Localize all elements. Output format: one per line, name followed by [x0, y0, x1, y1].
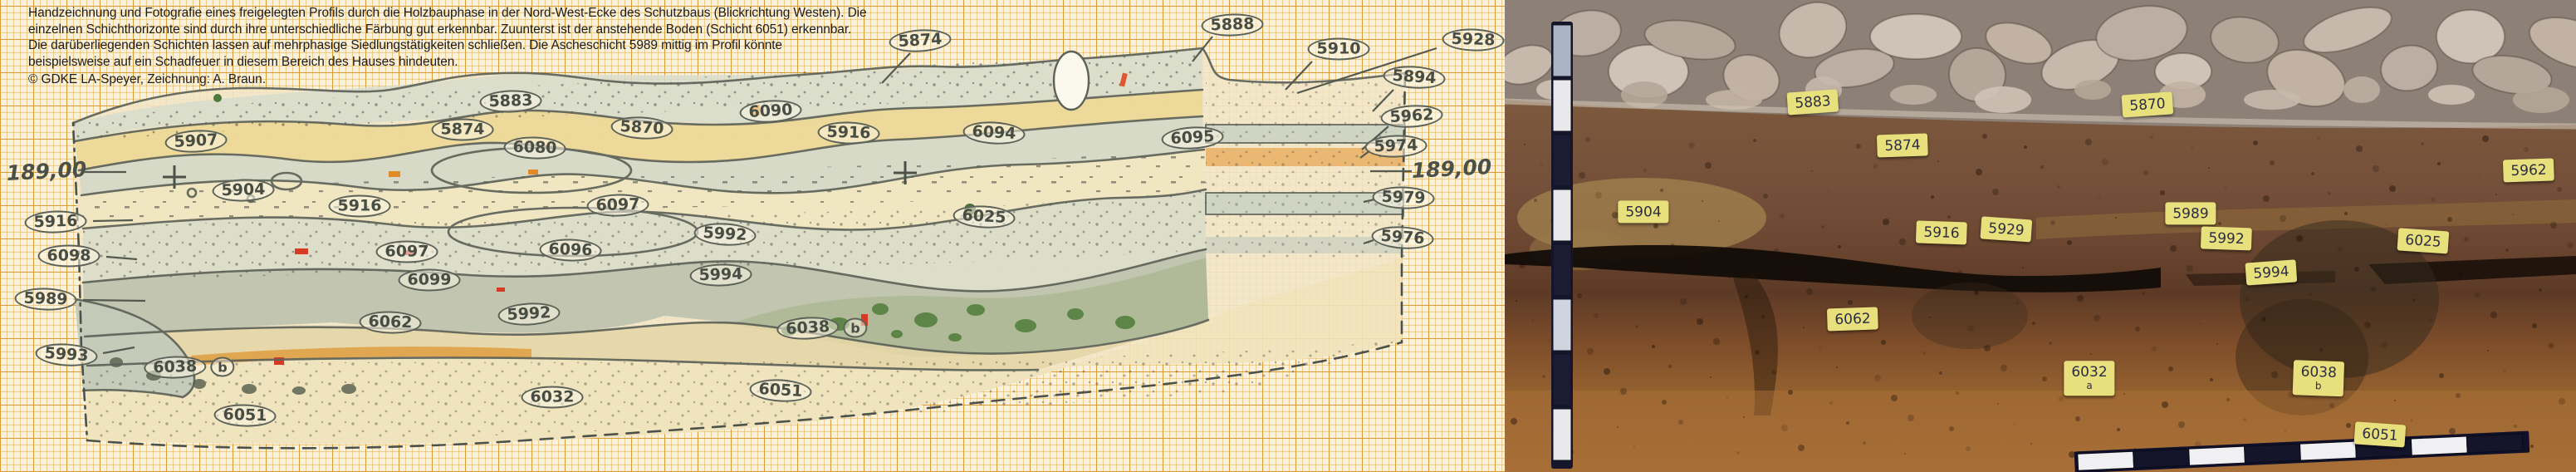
caption-credit: © GDKE LA-Speyer, Zeichnung: A. Braun.: [28, 71, 266, 88]
caption-text: Handzeichnung und Fotografie eines freig…: [28, 6, 867, 69]
figure-canvas: 5907588358746080587060905904591659166094…: [0, 0, 2576, 472]
profile-photo-art: [1505, 0, 2576, 472]
figure-caption: Handzeichnung und Fotografie eines freig…: [28, 5, 867, 87]
profile-photo-panel: 5883587459045916592958705962598959926025…: [1505, 0, 2576, 472]
profile-drawing-panel: 5907588358746080587060905904591659166094…: [0, 0, 1505, 472]
survey-pole: [1551, 22, 1573, 469]
